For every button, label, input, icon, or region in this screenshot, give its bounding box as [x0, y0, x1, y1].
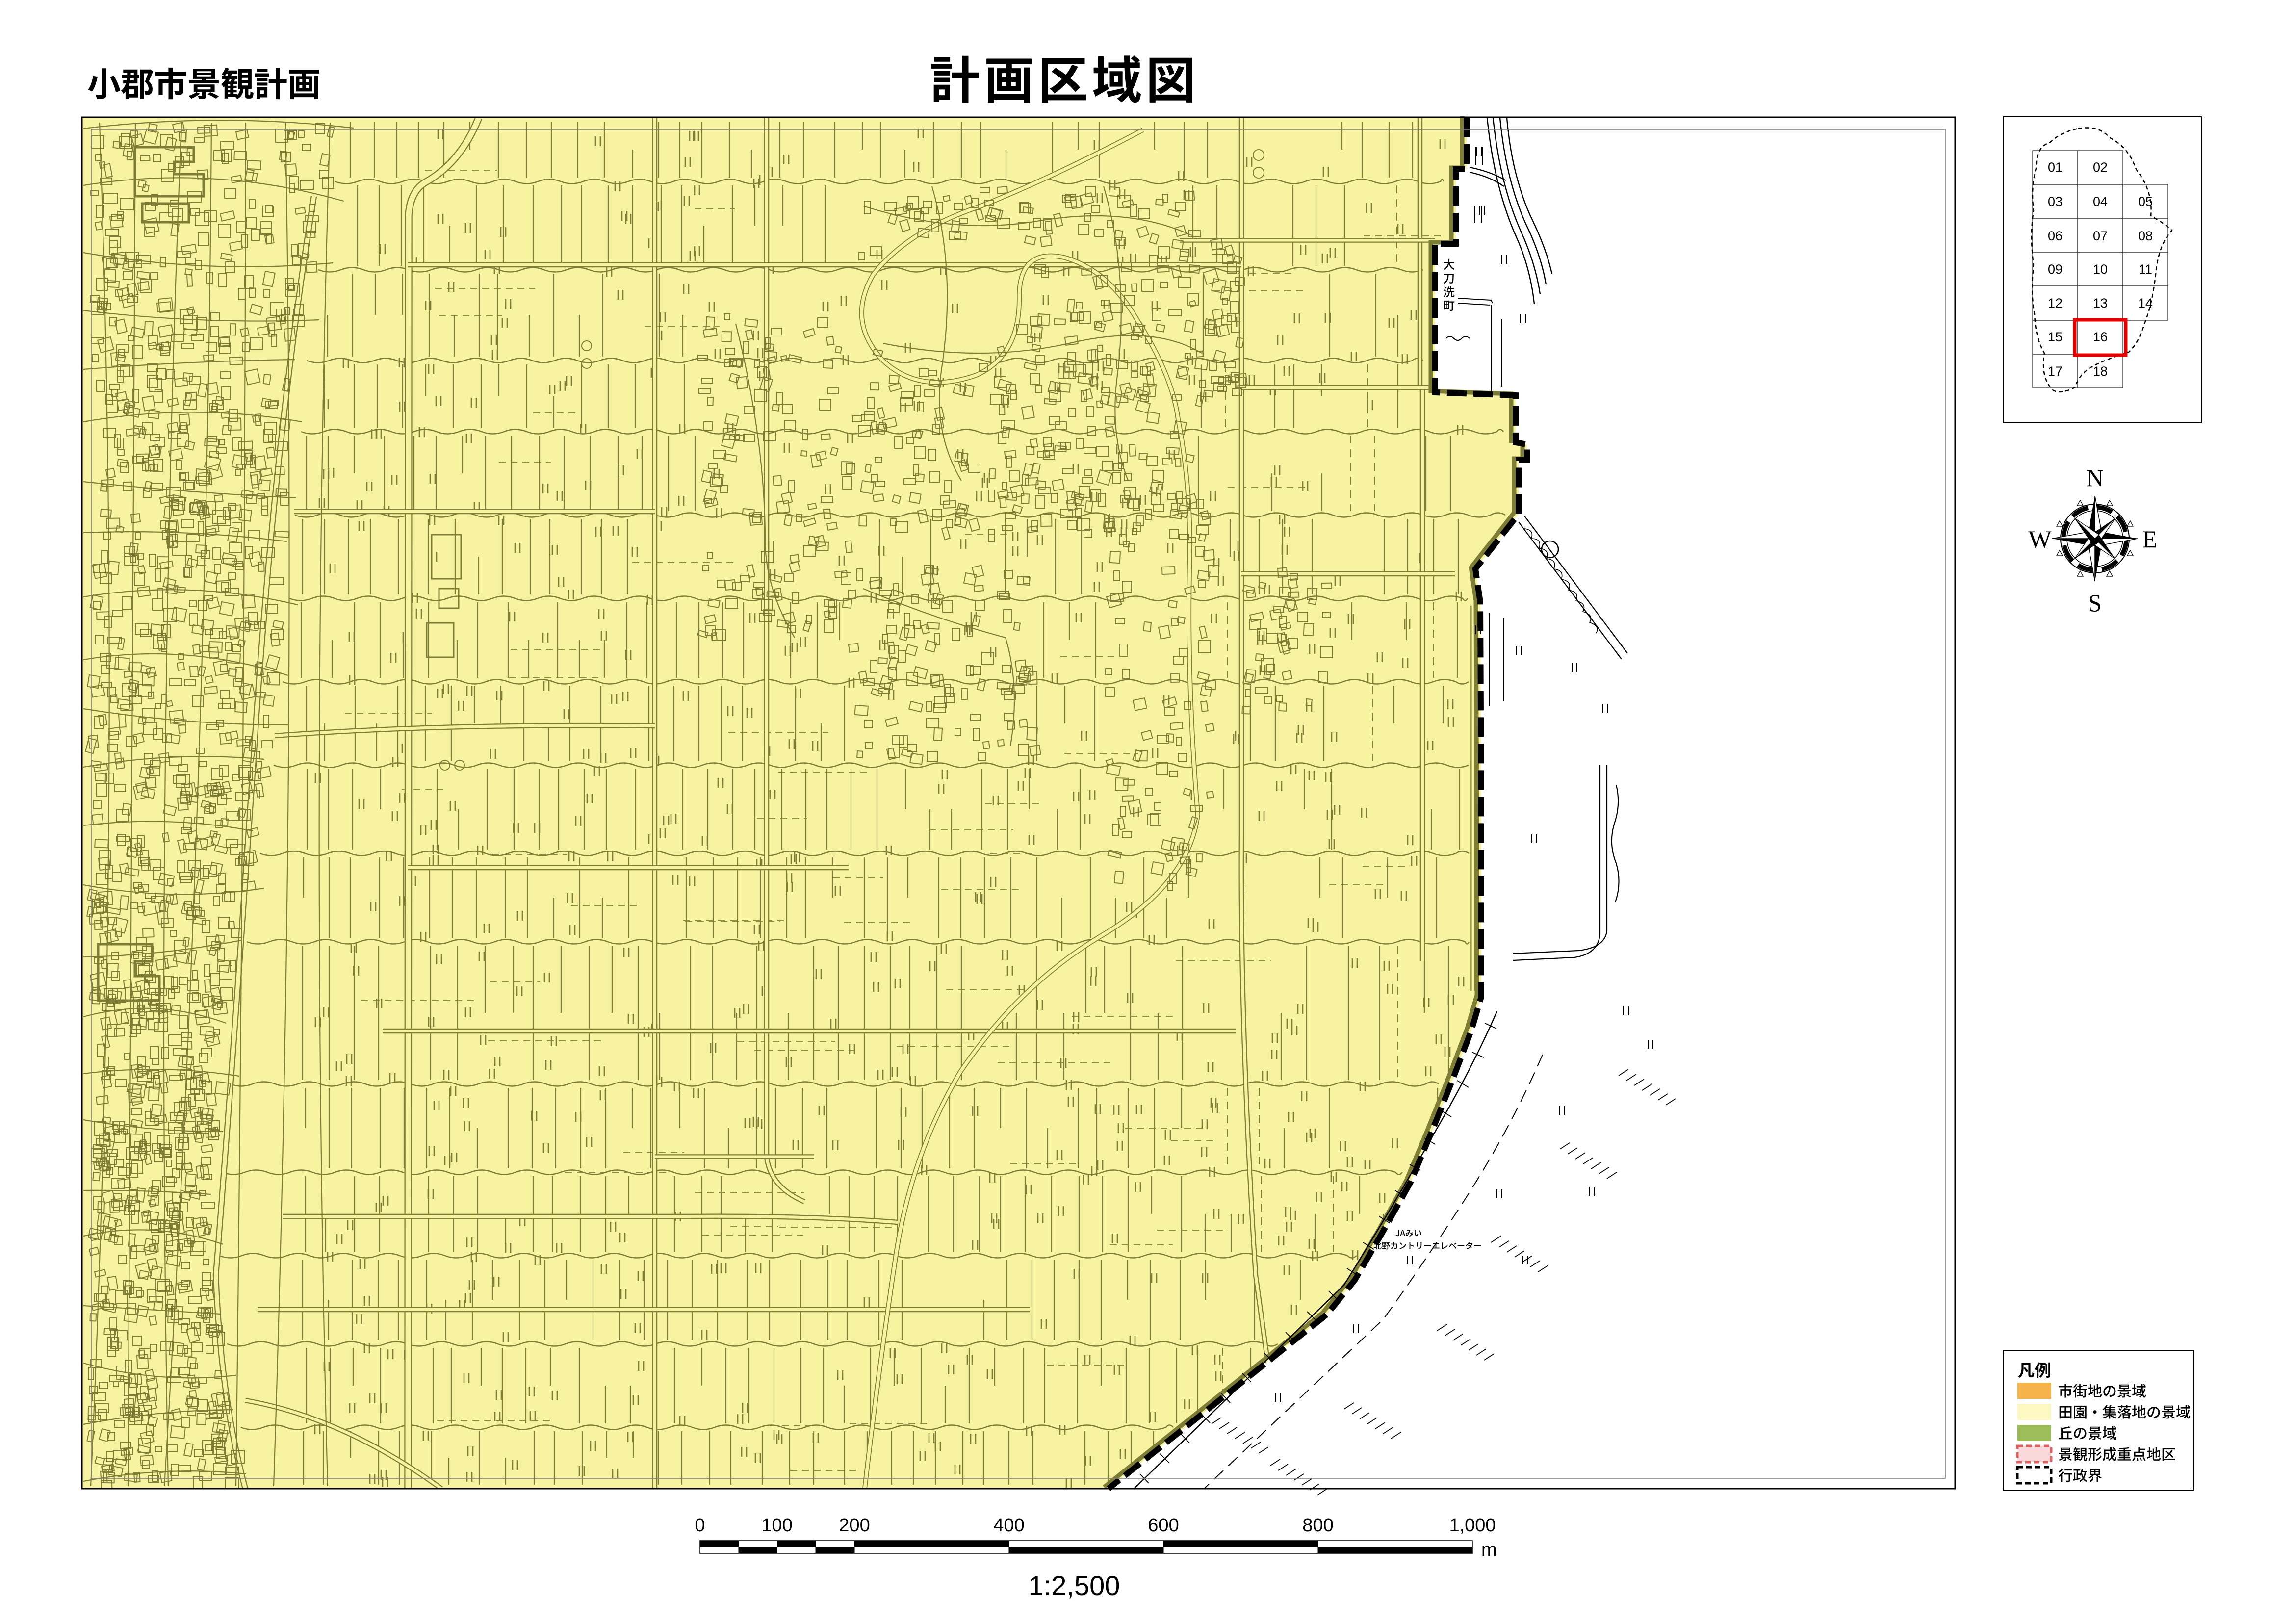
- svg-text:S: S: [2088, 589, 2102, 617]
- svg-text:16: 16: [2093, 330, 2108, 344]
- svg-text:12: 12: [2048, 296, 2063, 310]
- svg-text:100: 100: [761, 1515, 792, 1536]
- svg-text:W: W: [2028, 525, 2052, 553]
- svg-text:800: 800: [1302, 1515, 1333, 1536]
- svg-text:200: 200: [839, 1515, 870, 1536]
- svg-text:10: 10: [2093, 262, 2108, 277]
- svg-text:15: 15: [2048, 330, 2063, 344]
- svg-text:03: 03: [2048, 194, 2063, 209]
- svg-text:N: N: [2086, 464, 2104, 491]
- svg-text:11: 11: [2139, 262, 2152, 277]
- svg-text:09: 09: [2048, 262, 2063, 277]
- svg-text:08: 08: [2138, 229, 2153, 243]
- svg-text:m: m: [1481, 1540, 1497, 1560]
- svg-text:400: 400: [993, 1515, 1024, 1536]
- svg-text:06: 06: [2048, 229, 2063, 243]
- svg-text:1,000: 1,000: [1449, 1515, 1496, 1536]
- svg-text:600: 600: [1148, 1515, 1179, 1536]
- svg-text:13: 13: [2093, 296, 2108, 310]
- svg-text:02: 02: [2093, 160, 2108, 175]
- svg-text:17: 17: [2048, 364, 2063, 379]
- svg-text:0: 0: [695, 1515, 705, 1536]
- svg-text:18: 18: [2093, 364, 2108, 379]
- svg-text:07: 07: [2093, 229, 2108, 243]
- svg-text:E: E: [2142, 525, 2158, 553]
- svg-text:01: 01: [2048, 160, 2063, 175]
- svg-text:1:2,500: 1:2,500: [1029, 1570, 1120, 1601]
- svg-text:04: 04: [2093, 194, 2108, 209]
